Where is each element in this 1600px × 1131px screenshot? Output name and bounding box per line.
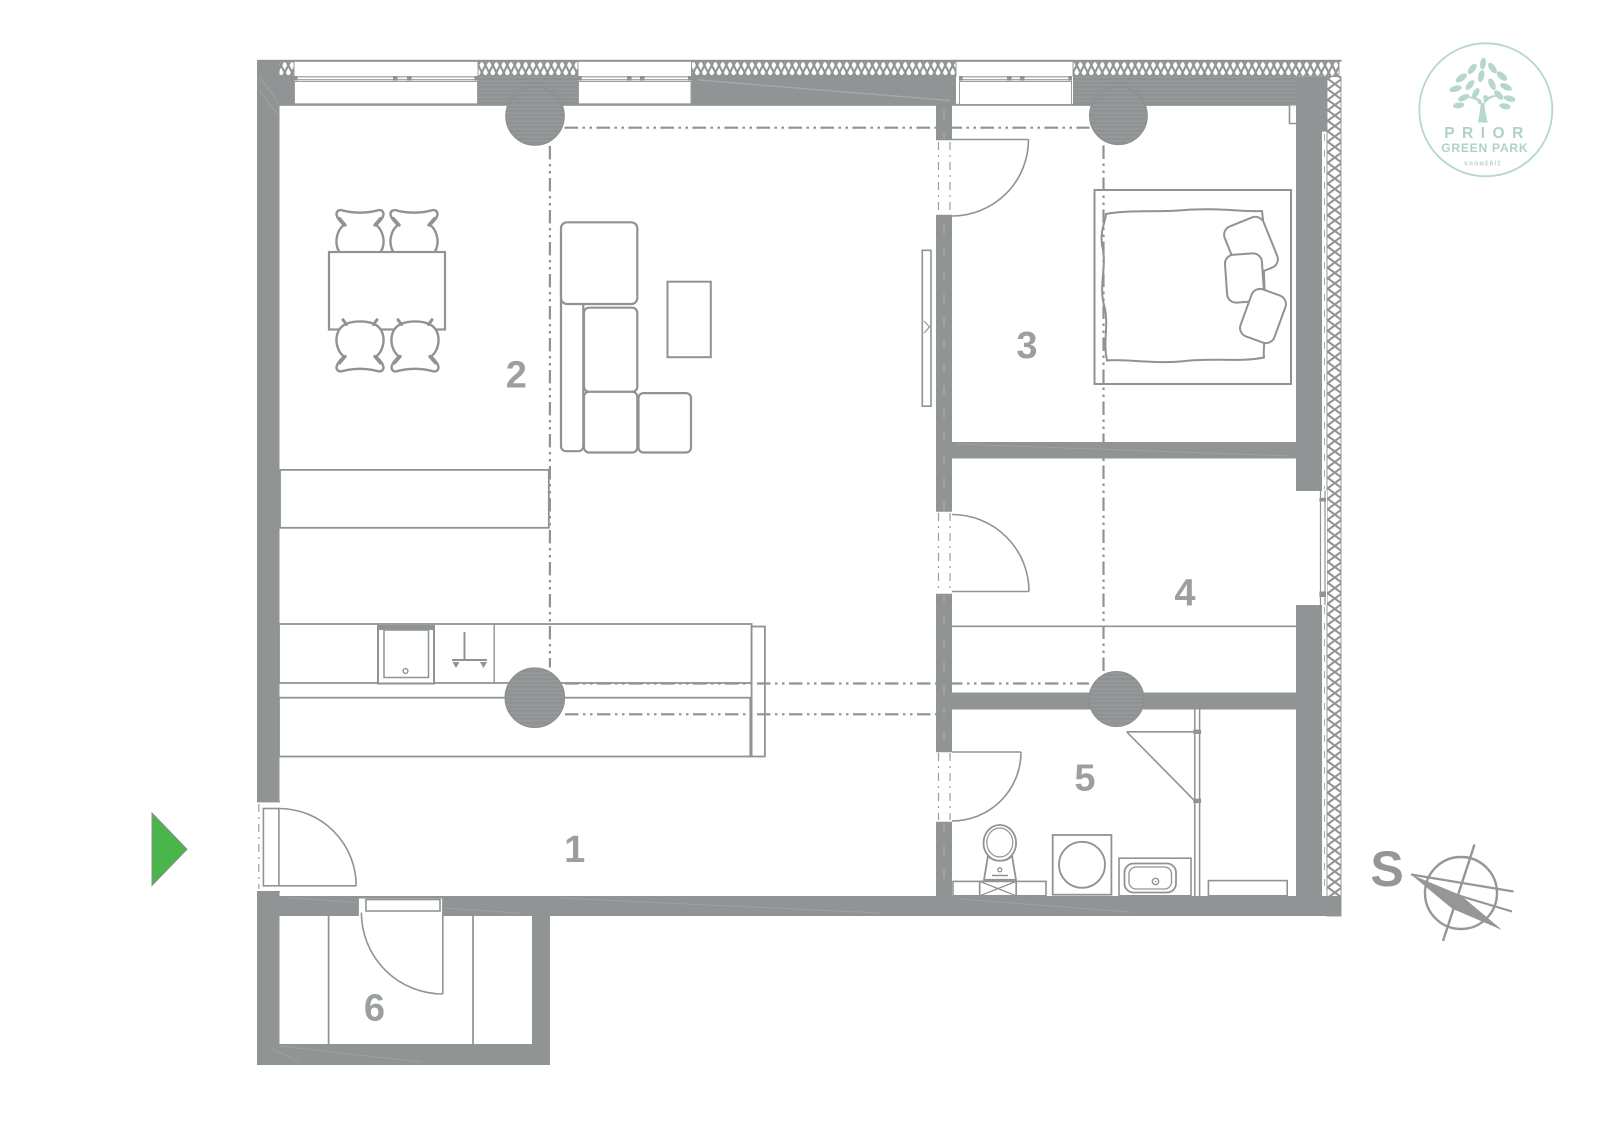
svg-text:PRIOR: PRIOR [1444,125,1531,142]
svg-text:3: 3 [1016,325,1037,367]
svg-text:GREEN PARK: GREEN PARK [1441,141,1528,155]
svg-text:S: S [1370,841,1403,897]
svg-text:1: 1 [564,829,585,871]
svg-text:2: 2 [506,354,527,396]
svg-text:KROMĚŘÍŽ: KROMĚŘÍŽ [1464,160,1501,168]
svg-text:6: 6 [364,988,385,1030]
svg-text:4: 4 [1174,573,1195,615]
svg-text:5: 5 [1074,758,1095,800]
